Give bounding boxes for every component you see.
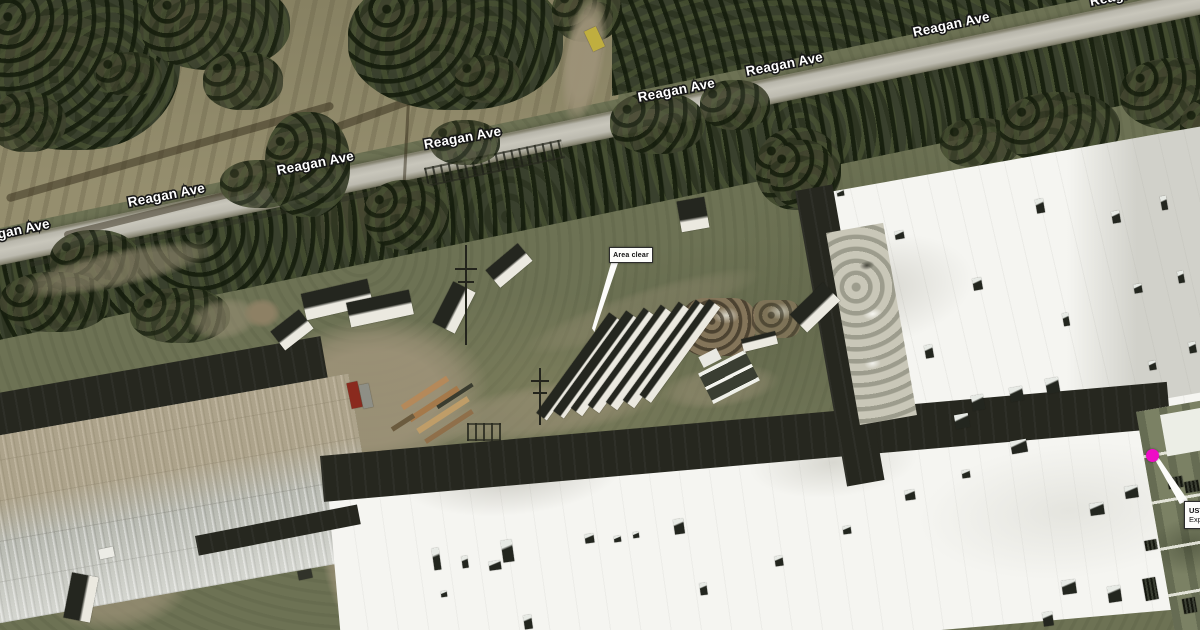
ust-callout[interactable]: UST Exp	[1184, 501, 1200, 529]
road-name-label: Reagan Ave	[276, 149, 356, 178]
road-name-label: Reagan Ave	[127, 181, 207, 210]
area-clear-callout[interactable]: Area clear	[609, 247, 653, 263]
road-name-label: Reagan Ave	[745, 50, 825, 79]
road-name-label: Reagan Ave	[912, 10, 991, 40]
road-name-label: Reagan Ave	[0, 217, 51, 247]
road-name-label: Reagan Ave	[423, 125, 503, 152]
road-name-label: Reagan Ave	[637, 76, 717, 105]
ust-text-line2: Exp	[1189, 515, 1200, 524]
satellite-map[interactable]: Reagan AveReagan AveReagan AveReagan Ave…	[0, 0, 1200, 630]
area-clear-text: Area clear	[613, 252, 649, 259]
ust-text-line1: UST	[1189, 506, 1200, 515]
road-name-label: Reagan Ave	[1089, 0, 1169, 9]
magenta-site-marker[interactable]	[1146, 449, 1159, 462]
